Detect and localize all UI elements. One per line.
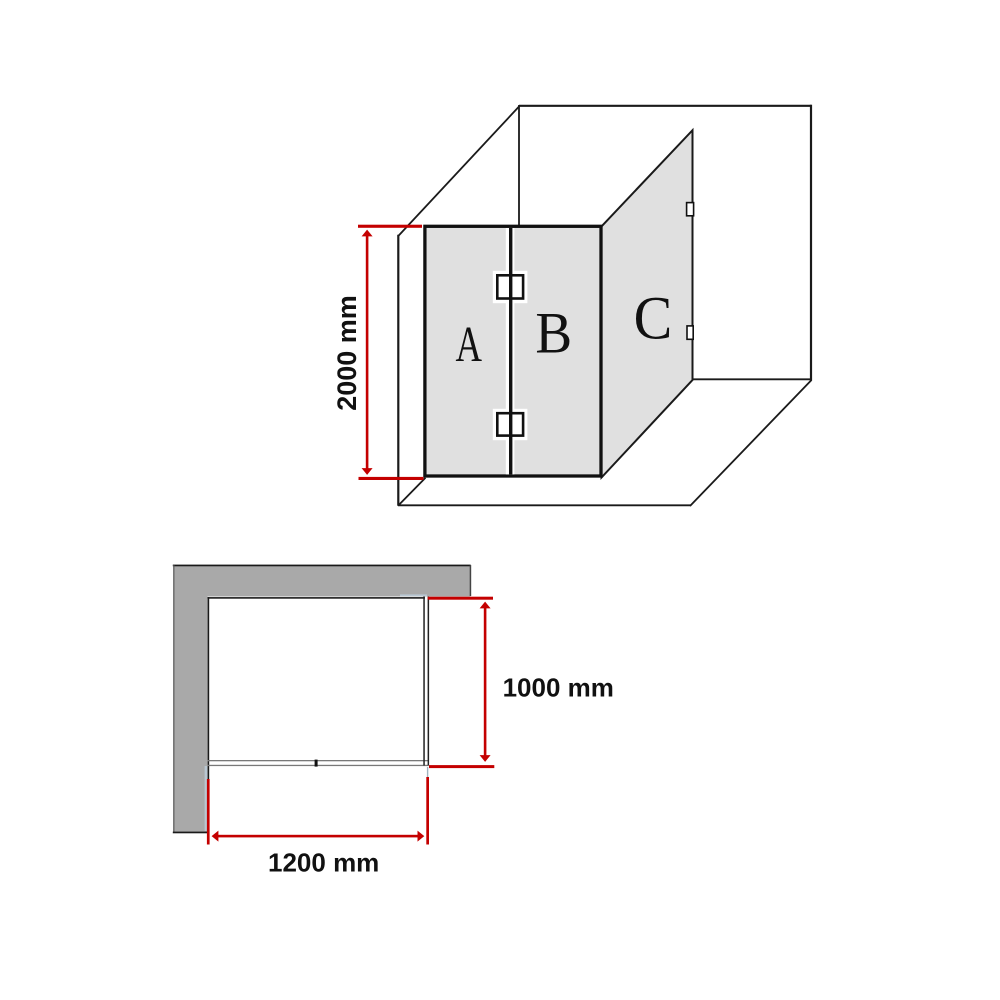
- svg-text:C: C: [634, 284, 673, 352]
- svg-text:B: B: [535, 302, 572, 366]
- svg-text:1000 mm: 1000 mm: [503, 673, 614, 703]
- svg-text:1200 mm: 1200 mm: [268, 848, 379, 878]
- svg-text:A: A: [456, 315, 483, 372]
- svg-text:2000 mm: 2000 mm: [332, 295, 362, 411]
